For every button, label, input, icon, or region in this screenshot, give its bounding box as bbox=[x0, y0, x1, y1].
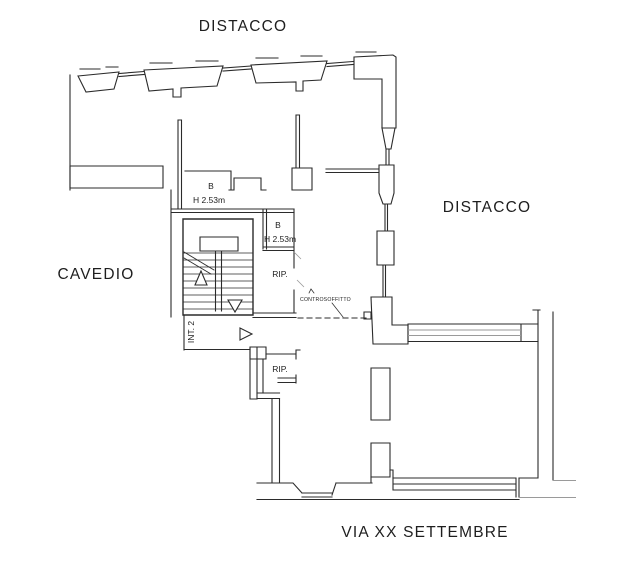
labels-layer: DISTACCO DISTACCO CAVEDIO VIA XX SETTEMB… bbox=[57, 18, 531, 541]
closet-bottom-wall bbox=[257, 393, 280, 399]
lower-left-wall bbox=[272, 399, 280, 484]
closet-door-frame bbox=[278, 375, 296, 383]
entry bbox=[184, 315, 266, 359]
rip1-walls bbox=[253, 290, 296, 318]
middle-strip bbox=[172, 168, 378, 213]
storage2-label: RIP. bbox=[272, 364, 287, 374]
street-facade bbox=[257, 478, 519, 500]
upper-wing bbox=[70, 52, 396, 208]
light-lines-layer bbox=[294, 252, 576, 498]
floor-plan-canvas: DISTACCO DISTACCO CAVEDIO VIA XX SETTEMB… bbox=[0, 0, 623, 576]
label-street: VIA XX SETTEMBRE bbox=[341, 524, 508, 541]
label-cavedio: CAVEDIO bbox=[57, 266, 134, 283]
storage1-label: RIP. bbox=[272, 269, 287, 279]
right-corner-block bbox=[521, 310, 540, 324]
entry-door-arrow bbox=[240, 328, 252, 340]
window-pier-gap-1 bbox=[386, 149, 389, 165]
corner-pillar bbox=[354, 55, 396, 128]
stair-arrow-up bbox=[195, 271, 207, 285]
entry-corner-block bbox=[250, 347, 266, 359]
right-inner-wall bbox=[519, 310, 538, 478]
walls-layer bbox=[70, 52, 553, 500]
bay-link-2 bbox=[223, 66, 251, 71]
window-band-right bbox=[408, 324, 538, 342]
pillar-d-corner bbox=[371, 297, 408, 344]
bath1-height-label: H 2.53m bbox=[193, 195, 225, 205]
closet-left-wall bbox=[250, 348, 257, 399]
sidewalk-lines bbox=[519, 481, 576, 498]
bay-link-1 bbox=[119, 72, 144, 77]
corridor-top-wall bbox=[172, 209, 294, 213]
ceiling-tick bbox=[309, 289, 314, 293]
window-pier-gap-2 bbox=[385, 204, 388, 231]
window-band-right-inner-lines bbox=[408, 330, 521, 336]
bath1-code-label: B bbox=[208, 181, 214, 191]
lower-left bbox=[257, 368, 393, 497]
bay-window-1 bbox=[78, 72, 119, 92]
partition-stub-right bbox=[296, 115, 300, 168]
pillar-c bbox=[377, 231, 394, 265]
niche-walls bbox=[229, 178, 266, 190]
label-distacco-top: DISTACCO bbox=[199, 18, 288, 35]
floor-plan-page: DISTACCO DISTACCO CAVEDIO VIA XX SETTEMB… bbox=[0, 0, 623, 576]
label-distacco-right: DISTACCO bbox=[443, 199, 532, 216]
window-pier-lower bbox=[371, 443, 390, 477]
stair-treads bbox=[183, 253, 253, 309]
window-band-bottom bbox=[393, 478, 519, 497]
closet-top-wall bbox=[266, 350, 300, 359]
stair-landing bbox=[200, 237, 238, 251]
stair-break-lines bbox=[184, 252, 214, 274]
mid-pier bbox=[292, 168, 312, 190]
bay-link-3 bbox=[327, 62, 353, 67]
bay-window-2 bbox=[144, 66, 223, 97]
bath2-height-label: H 2.53m bbox=[264, 234, 296, 244]
stair-arrow-down bbox=[228, 300, 242, 312]
entrance-label: INT. 2 bbox=[186, 321, 196, 343]
bath2-code-label: B bbox=[275, 220, 281, 230]
window-pier-upper bbox=[371, 368, 390, 420]
ceiling-note-marks bbox=[298, 289, 368, 318]
ceiling-note-label: CONTROSOFFITTO bbox=[300, 297, 351, 303]
right-wall-chain bbox=[364, 128, 408, 344]
thick-wall-band bbox=[70, 166, 163, 188]
door-swing-marks bbox=[294, 252, 304, 287]
bay-window-3 bbox=[251, 61, 327, 91]
ceiling-leader-line bbox=[332, 303, 343, 317]
partition-stub-left bbox=[178, 120, 182, 208]
facade-left bbox=[257, 477, 372, 497]
pillar-b bbox=[379, 165, 394, 204]
window-pier-gap-3 bbox=[383, 265, 386, 297]
pillar-taper bbox=[382, 128, 395, 149]
mid-wall-right bbox=[326, 169, 378, 173]
